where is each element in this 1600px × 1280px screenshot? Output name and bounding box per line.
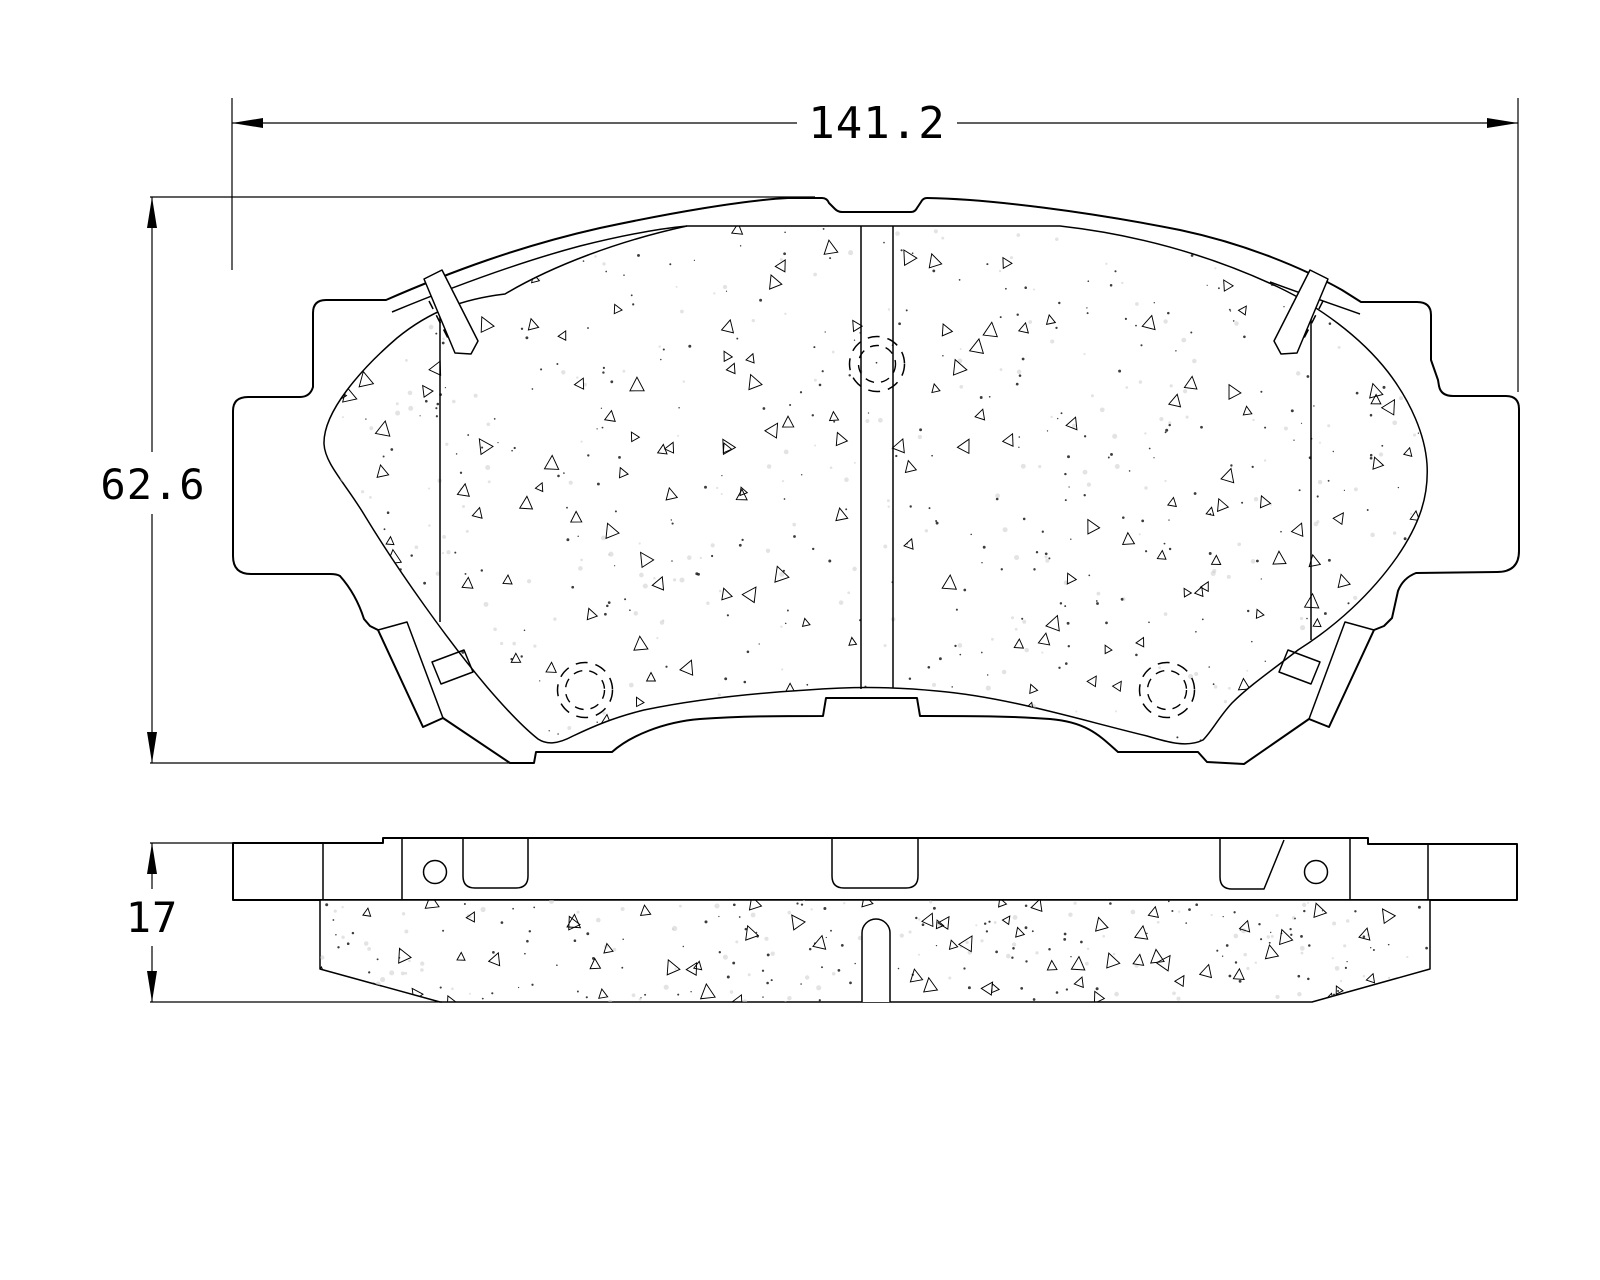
arrowhead-up — [147, 197, 157, 228]
technical-drawing-canvas: 141.2 62.6 17 — [0, 0, 1600, 1280]
brake-pad-front-view — [233, 198, 1519, 764]
arrowhead-down — [147, 971, 157, 1002]
width-dimension-label: 141.2 — [808, 98, 945, 149]
brake-pad-side-view — [233, 838, 1517, 1010]
thickness-dimension-label: 17 — [126, 893, 179, 942]
arrowhead-left — [232, 118, 263, 128]
side-hole-right — [1305, 861, 1328, 884]
height-dimension-label: 62.6 — [100, 460, 205, 509]
side-hole-left — [424, 861, 447, 884]
side-slot-groove — [862, 919, 890, 1002]
arrowhead-right — [1487, 118, 1518, 128]
arrowhead-up — [147, 843, 157, 874]
friction-material-outline — [324, 226, 1427, 744]
arrowhead-down — [147, 732, 157, 763]
drawing-sheet: 141.2 62.6 17 — [0, 0, 1600, 1280]
